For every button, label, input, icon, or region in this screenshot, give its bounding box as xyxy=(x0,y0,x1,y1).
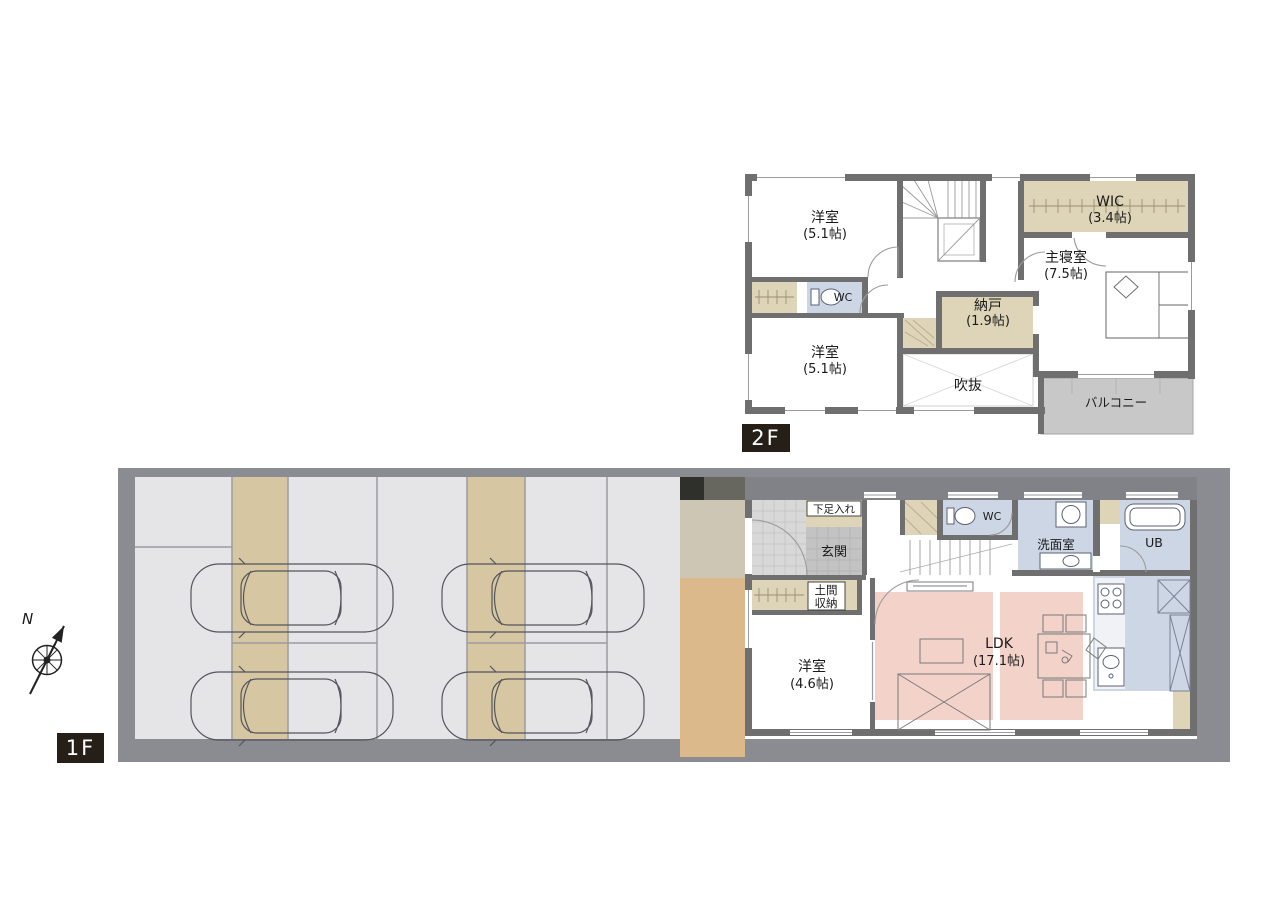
f1-toilet-icon xyxy=(947,508,975,525)
f2-bed xyxy=(1106,272,1189,338)
f2-wic-name: WIC xyxy=(1096,194,1124,210)
f2-nando-size: (1.9帖) xyxy=(966,314,1010,329)
f1-ub-label: UB xyxy=(1145,535,1163,550)
f2-balcony-label: バルコニー xyxy=(1085,395,1147,410)
f1-doma-label-line2: 収納 xyxy=(815,596,838,610)
f1-senmen-label: 洗面室 xyxy=(1037,537,1075,552)
f1-parking-concrete xyxy=(135,477,680,739)
f1-wc-label: WC xyxy=(983,510,1002,523)
f1-basin-icon xyxy=(1040,553,1091,569)
f2-yoshitsu-top-name: 洋室 xyxy=(811,209,839,226)
f2-yoshitsu-top-size: (5.1帖) xyxy=(803,227,847,242)
f1-approach-gravel xyxy=(680,500,745,578)
floor1-plan: 下足入れ 玄関 WC 洗面室 UB 土間 収納 洋室 (4.6帖) LDK (1… xyxy=(118,468,1230,764)
f1-doma-label-line1: 土間 xyxy=(815,583,838,597)
f1-bathtub-icon xyxy=(1125,504,1185,530)
f1-genkan-label: 玄関 xyxy=(821,545,847,560)
f2-master-name: 主寝室 xyxy=(1045,249,1087,266)
floorplan-page: 洋室 (5.1帖) WIC (3.4帖) 主寝室 (7.5帖) WC 納戸 (1… xyxy=(0,0,1280,913)
compass: N xyxy=(10,606,100,716)
f1-stove-icon xyxy=(1098,584,1124,614)
f1-ldk-name: LDK xyxy=(985,636,1014,652)
f1-yoshitsu-size: (4.6帖) xyxy=(790,677,834,692)
f2-wic-size: (3.4帖) xyxy=(1088,211,1132,226)
floor1-label-badge: 1F xyxy=(57,733,104,763)
f1-linen-floor xyxy=(1100,500,1120,524)
f1-washer-icon xyxy=(1056,502,1086,527)
f2-master-size: (7.5帖) xyxy=(1044,267,1088,282)
f2-wc-label: WC xyxy=(834,291,853,304)
floor2-plan: 洋室 (5.1帖) WIC (3.4帖) 主寝室 (7.5帖) WC 納戸 (1… xyxy=(742,166,1200,458)
f1-kitchen-closet-floor xyxy=(1173,691,1190,729)
f1-deck xyxy=(680,578,745,757)
f1-bush xyxy=(680,477,704,500)
f1-porch-tile xyxy=(751,500,806,575)
f2-nando-name: 納戸 xyxy=(974,298,1002,314)
f2-yoshitsu-bottom-name: 洋室 xyxy=(811,344,839,361)
f2-yoshitsu-bottom-size: (5.1帖) xyxy=(803,362,847,377)
f2-fukinuke-label: 吹抜 xyxy=(954,378,982,394)
f1-yoshitsu-name: 洋室 xyxy=(798,658,826,675)
compass-rose-icon xyxy=(30,626,64,694)
f1-gravel-strip xyxy=(232,477,288,739)
f1-ldk-size: (17.1帖) xyxy=(973,654,1025,669)
floor2-label-badge: 2F xyxy=(742,424,790,452)
f1-shoe-label: 下足入れ xyxy=(813,504,855,516)
compass-north-label: N xyxy=(22,610,33,628)
